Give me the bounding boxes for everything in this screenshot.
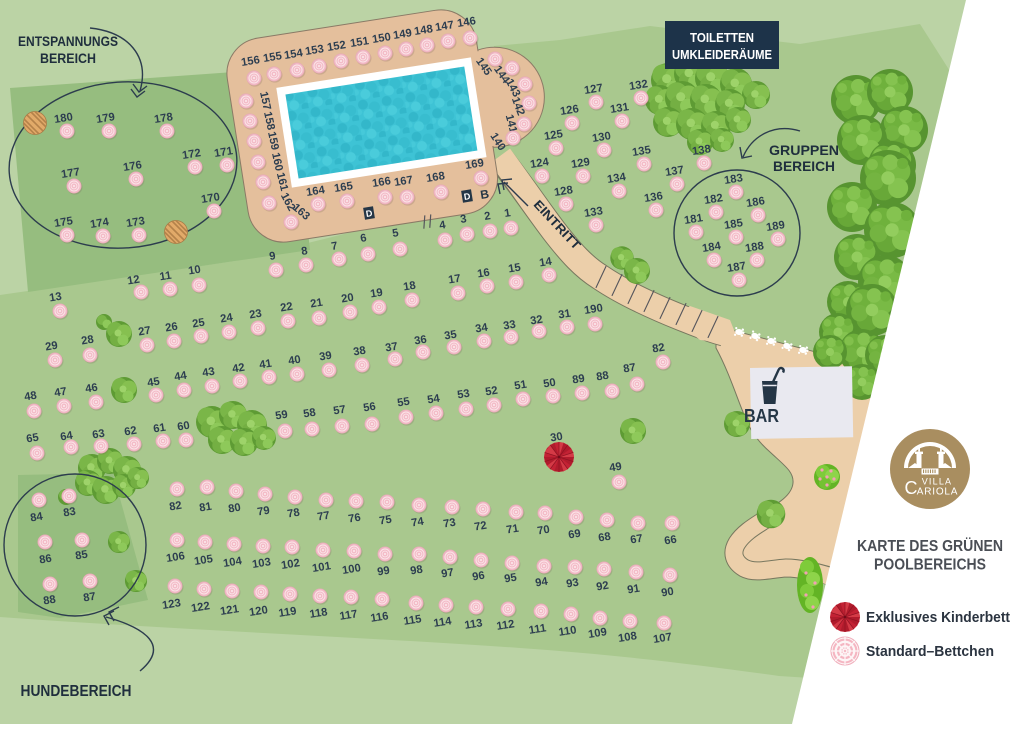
svg-text:ENTSPANNUNGS: ENTSPANNUNGS [18,34,118,49]
svg-text:VILLA: VILLA [922,477,953,487]
svg-text:29: 29 [44,340,58,354]
svg-text:79: 79 [256,505,270,519]
svg-text:36: 36 [413,334,427,348]
svg-text:72: 72 [473,520,487,534]
svg-text:91: 91 [626,583,640,597]
svg-text:88: 88 [595,370,609,384]
svg-text:53: 53 [456,388,470,402]
svg-text:75: 75 [378,514,392,528]
svg-text:Standard–Bettchen: Standard–Bettchen [866,644,994,660]
svg-text:20: 20 [340,292,354,306]
svg-text:GRUPPEN: GRUPPEN [769,142,839,158]
svg-text:45: 45 [146,376,160,390]
svg-text:93: 93 [565,577,579,591]
svg-text:16: 16 [476,267,490,281]
svg-text:83: 83 [62,506,76,520]
svg-text:68: 68 [597,531,611,545]
svg-text:25: 25 [191,317,205,331]
svg-text:61: 61 [152,422,166,436]
svg-text:ARIOLA: ARIOLA [917,487,958,498]
svg-text:40: 40 [287,354,301,368]
svg-text:38: 38 [352,345,366,359]
svg-text:77: 77 [316,510,330,524]
svg-text:60: 60 [176,420,190,434]
svg-text:19: 19 [369,287,383,301]
svg-text:50: 50 [542,377,556,391]
svg-text:Exklusives Kinderbett: Exklusives Kinderbett [866,610,1010,626]
svg-text:57: 57 [332,404,346,418]
svg-text:33: 33 [502,319,516,333]
svg-text:13: 13 [48,291,62,305]
svg-text:81: 81 [198,501,212,515]
svg-text:35: 35 [443,329,457,343]
svg-text:73: 73 [442,517,456,531]
svg-text:46: 46 [84,382,98,396]
svg-text:26: 26 [164,321,178,335]
svg-text:23: 23 [248,308,262,322]
svg-text:43: 43 [201,366,215,380]
svg-text:66: 66 [663,534,677,548]
svg-text:92: 92 [595,580,609,594]
svg-text:70: 70 [536,524,550,538]
svg-text:47: 47 [53,386,67,400]
svg-text:82: 82 [168,500,182,514]
svg-text:87: 87 [82,591,96,605]
svg-text:21: 21 [309,297,323,311]
svg-text:31: 31 [557,308,571,322]
svg-text:HUNDEBEREICH: HUNDEBEREICH [21,683,132,700]
svg-text:49: 49 [608,461,622,475]
svg-text:90: 90 [660,586,674,600]
svg-text:67: 67 [629,533,643,547]
svg-text:87: 87 [622,362,636,376]
svg-text:80: 80 [227,502,241,516]
svg-text:27: 27 [137,325,151,339]
svg-text:58: 58 [302,407,316,421]
svg-text:C: C [905,478,918,498]
svg-text:98: 98 [409,564,423,578]
svg-text:10: 10 [187,264,201,278]
svg-text:65: 65 [25,432,39,446]
svg-text:KARTE DES GRÜNEN: KARTE DES GRÜNEN [857,538,1003,555]
svg-text:48: 48 [23,390,37,404]
svg-text:52: 52 [484,385,498,399]
svg-text:11: 11 [159,270,173,284]
svg-text:55: 55 [396,396,410,410]
svg-text:89: 89 [571,373,585,387]
svg-text:12: 12 [126,274,140,288]
svg-text:56: 56 [362,401,376,415]
svg-text:69: 69 [567,528,581,542]
svg-text:POOLBEREICHS: POOLBEREICHS [874,557,986,574]
svg-text:BEREICH: BEREICH [773,158,835,174]
svg-text:UMKLEIDERÄUME: UMKLEIDERÄUME [672,47,772,62]
svg-text:78: 78 [286,507,300,521]
svg-text:99: 99 [376,565,390,579]
svg-text:17: 17 [447,273,461,287]
svg-text:97: 97 [440,567,454,581]
svg-text:41: 41 [258,358,272,372]
svg-text:62: 62 [123,425,137,439]
svg-text:30: 30 [549,431,563,445]
svg-text:95: 95 [503,572,517,586]
svg-text:88: 88 [42,594,56,608]
svg-text:96: 96 [471,570,485,584]
svg-text:82: 82 [651,342,665,356]
svg-text:28: 28 [80,334,94,348]
svg-text:BEREICH: BEREICH [40,51,96,66]
svg-text:15: 15 [507,262,521,276]
svg-text:76: 76 [347,512,361,526]
svg-text:59: 59 [274,409,288,423]
svg-text:42: 42 [231,362,245,376]
svg-text:BAR: BAR [744,406,779,426]
svg-text:TOILETTEN: TOILETTEN [690,31,754,45]
svg-text:85: 85 [74,549,88,563]
svg-text:37: 37 [384,341,398,355]
svg-text:39: 39 [318,350,332,364]
svg-text:86: 86 [38,553,52,567]
svg-text:18: 18 [402,280,416,294]
svg-text:63: 63 [91,428,105,442]
svg-text:22: 22 [279,301,293,315]
svg-text:32: 32 [529,314,543,328]
svg-text:71: 71 [505,523,519,537]
svg-text:51: 51 [513,379,527,393]
